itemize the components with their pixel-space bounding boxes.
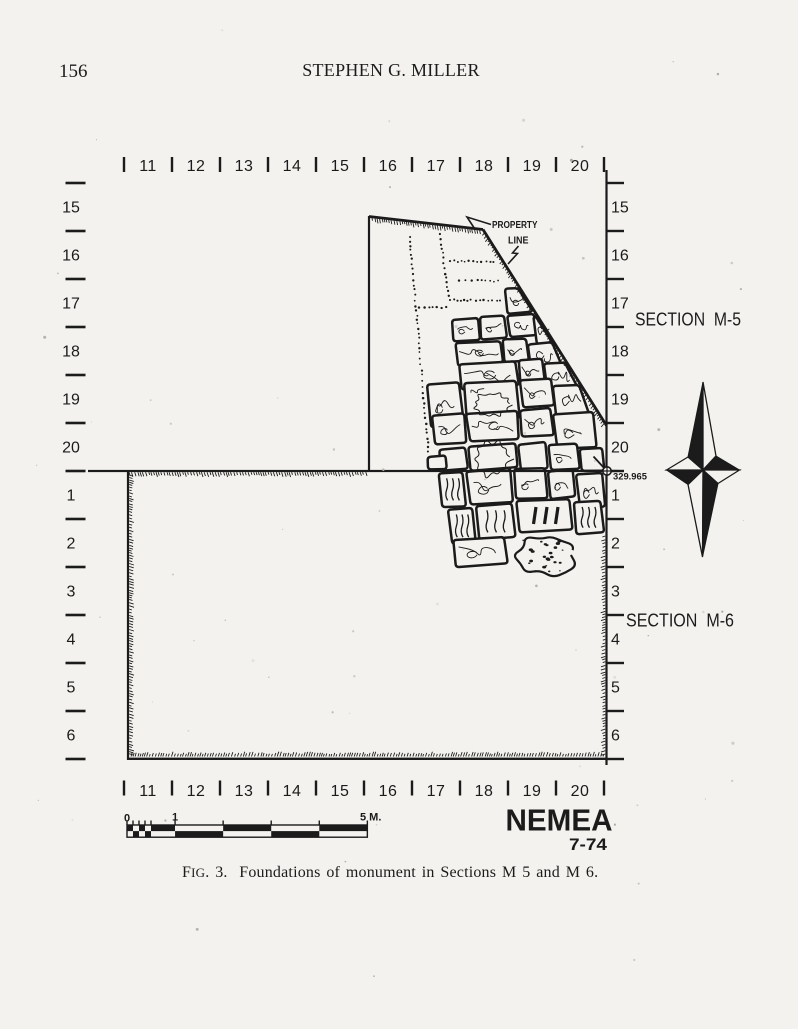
svg-text:329.965: 329.965 <box>613 472 647 482</box>
svg-text:STEPHEN G. MILLER: STEPHEN G. MILLER <box>302 60 480 80</box>
svg-text:15: 15 <box>611 200 629 217</box>
svg-text:5: 5 <box>611 680 620 697</box>
svg-text:6: 6 <box>67 728 76 745</box>
svg-text:11: 11 <box>139 158 157 175</box>
svg-text:11: 11 <box>139 783 157 800</box>
svg-text:156: 156 <box>59 61 88 82</box>
svg-text:18: 18 <box>475 783 494 800</box>
svg-text:18: 18 <box>611 344 629 361</box>
svg-text:16: 16 <box>611 248 629 265</box>
svg-text:13: 13 <box>235 783 254 800</box>
svg-text:15: 15 <box>331 783 350 800</box>
svg-text:FIG. 3. Foundations of monume: FIG. 3. Foundations of monument in Secti… <box>182 864 598 881</box>
svg-text:SECTION M-6: SECTION M-6 <box>626 611 734 631</box>
svg-text:16: 16 <box>62 248 80 265</box>
svg-text:SECTION M-5: SECTION M-5 <box>635 310 741 330</box>
svg-text:1: 1 <box>67 488 76 505</box>
svg-text:20: 20 <box>571 158 590 175</box>
svg-text:1: 1 <box>611 488 620 505</box>
svg-text:19: 19 <box>62 392 80 409</box>
svg-text:PROPERTY: PROPERTY <box>492 220 538 231</box>
svg-text:18: 18 <box>475 158 494 175</box>
svg-text:17: 17 <box>427 158 446 175</box>
svg-text:19: 19 <box>523 158 542 175</box>
svg-text:12: 12 <box>187 158 206 175</box>
svg-text:20: 20 <box>611 440 629 457</box>
svg-text:4: 4 <box>611 632 620 649</box>
svg-text:3: 3 <box>611 584 620 601</box>
svg-text:17: 17 <box>427 783 446 800</box>
svg-text:16: 16 <box>379 158 398 175</box>
svg-text:14: 14 <box>283 158 302 175</box>
svg-text:17: 17 <box>62 296 80 313</box>
svg-text:18: 18 <box>62 344 80 361</box>
svg-text:7-74: 7-74 <box>569 835 608 854</box>
svg-text:5 M.: 5 M. <box>360 812 381 824</box>
svg-text:1: 1 <box>172 812 178 824</box>
svg-text:13: 13 <box>235 158 254 175</box>
svg-text:5: 5 <box>67 680 76 697</box>
svg-text:15: 15 <box>62 200 80 217</box>
svg-text:12: 12 <box>187 783 206 800</box>
svg-text:20: 20 <box>571 783 590 800</box>
svg-text:2: 2 <box>67 536 76 553</box>
svg-text:19: 19 <box>523 783 542 800</box>
svg-text:2: 2 <box>611 536 620 553</box>
svg-text:NEMEA: NEMEA <box>506 803 613 838</box>
svg-text:0: 0 <box>124 813 130 825</box>
svg-text:4: 4 <box>67 632 76 649</box>
svg-text:20: 20 <box>62 440 80 457</box>
svg-text:19: 19 <box>611 392 629 409</box>
svg-text:LINE: LINE <box>508 236 529 247</box>
svg-text:17: 17 <box>611 296 629 313</box>
svg-text:14: 14 <box>283 783 302 800</box>
svg-text:15: 15 <box>331 158 350 175</box>
svg-text:3: 3 <box>67 584 76 601</box>
svg-text:6: 6 <box>611 728 620 745</box>
svg-text:16: 16 <box>379 783 398 800</box>
